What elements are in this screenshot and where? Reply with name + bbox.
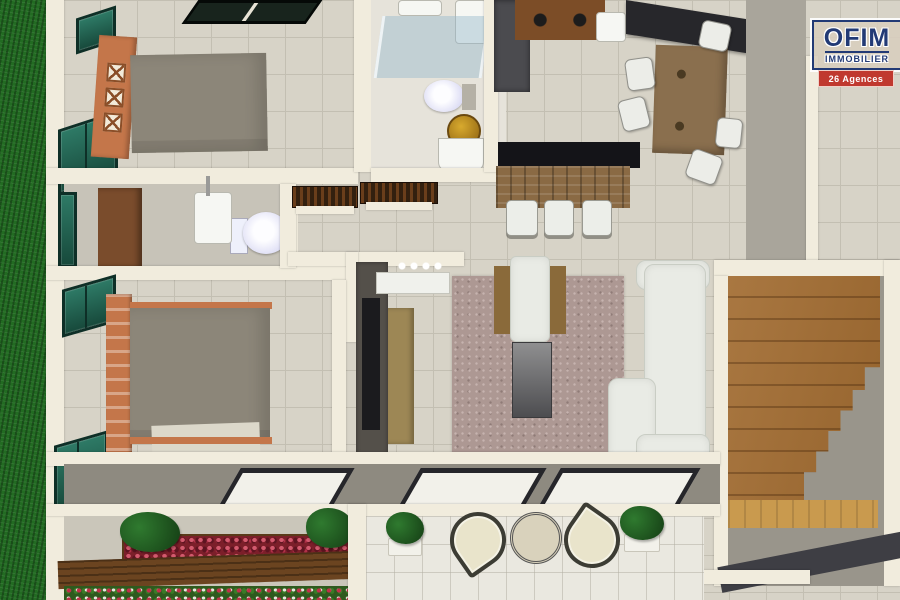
bar-stool bbox=[544, 200, 574, 236]
bar-stool bbox=[506, 200, 538, 236]
armchair-seat bbox=[510, 256, 550, 342]
tv-screen bbox=[362, 298, 380, 430]
hallway-sill-left bbox=[296, 206, 354, 214]
living-sideboard bbox=[388, 308, 414, 444]
wall-bedroom1-south bbox=[46, 168, 358, 184]
wall-stairs-south bbox=[700, 570, 810, 584]
patio-plant bbox=[620, 506, 664, 540]
patio-plant bbox=[386, 512, 424, 544]
window-mullion bbox=[242, 3, 259, 21]
living-console bbox=[376, 272, 450, 294]
hallway-slat-panel-right bbox=[360, 182, 438, 204]
bed2-foot-rail bbox=[130, 437, 272, 444]
coffee-table bbox=[512, 342, 552, 418]
wall-bedroom2-east bbox=[332, 280, 346, 462]
bathroom1-window bbox=[58, 192, 77, 268]
hanging-plant bbox=[306, 508, 354, 548]
wall-stairs-west bbox=[714, 276, 728, 586]
console-decor-row bbox=[396, 262, 444, 270]
kitchen-counter-hob bbox=[515, 0, 605, 40]
bathroom2-shelf bbox=[398, 0, 442, 16]
hanging-plant bbox=[120, 512, 180, 552]
garden-grass bbox=[0, 0, 46, 600]
headboard-x-panel bbox=[104, 87, 124, 107]
ofim-logo: OFIM IMMOBILIER bbox=[812, 20, 900, 70]
bed2-headboard bbox=[106, 294, 132, 468]
ofim-logo-badge: 26 Agences bbox=[818, 70, 894, 87]
wall-stairs-north bbox=[714, 260, 900, 276]
ofim-logo-brand: OFIM bbox=[824, 26, 891, 50]
dining-chair bbox=[715, 117, 744, 150]
patio-table bbox=[510, 512, 562, 564]
sink2-pedestal bbox=[438, 138, 484, 172]
sink1-basin bbox=[194, 192, 232, 244]
dining-chair bbox=[624, 56, 656, 92]
hallway-slat-panel-left bbox=[292, 186, 358, 208]
toilet2-bowl bbox=[424, 80, 464, 112]
sink1-faucet bbox=[206, 176, 210, 196]
bathroom1-door-open bbox=[98, 188, 142, 268]
bathroom2-shower-glass bbox=[374, 16, 491, 78]
bedroom1-top-window bbox=[182, 0, 323, 24]
toilet2-tank bbox=[462, 84, 476, 110]
headboard-x-panel bbox=[102, 112, 122, 132]
kitchen-island-top bbox=[498, 142, 640, 168]
headboard-x-panel bbox=[106, 62, 126, 82]
bed1-mattress bbox=[130, 53, 268, 153]
floorplan-3d-render: OFIM IMMOBILIER 26 Agences bbox=[0, 0, 900, 600]
ofim-logo-subtitle: IMMOBILIER bbox=[825, 51, 889, 64]
hallway-sill-right bbox=[366, 202, 432, 210]
table-decor bbox=[675, 121, 684, 130]
wall-bedroom1-east bbox=[354, 0, 371, 172]
wall-bathroom1-south bbox=[46, 266, 346, 280]
wall-corridor-east bbox=[806, 56, 818, 266]
stair-landing bbox=[728, 500, 878, 528]
table-decor bbox=[677, 70, 686, 79]
terrace-post bbox=[348, 504, 366, 600]
kitchen-sink bbox=[596, 12, 626, 42]
dining-chair bbox=[697, 19, 732, 53]
window-mullion bbox=[85, 286, 87, 329]
bar-stool bbox=[582, 200, 612, 236]
